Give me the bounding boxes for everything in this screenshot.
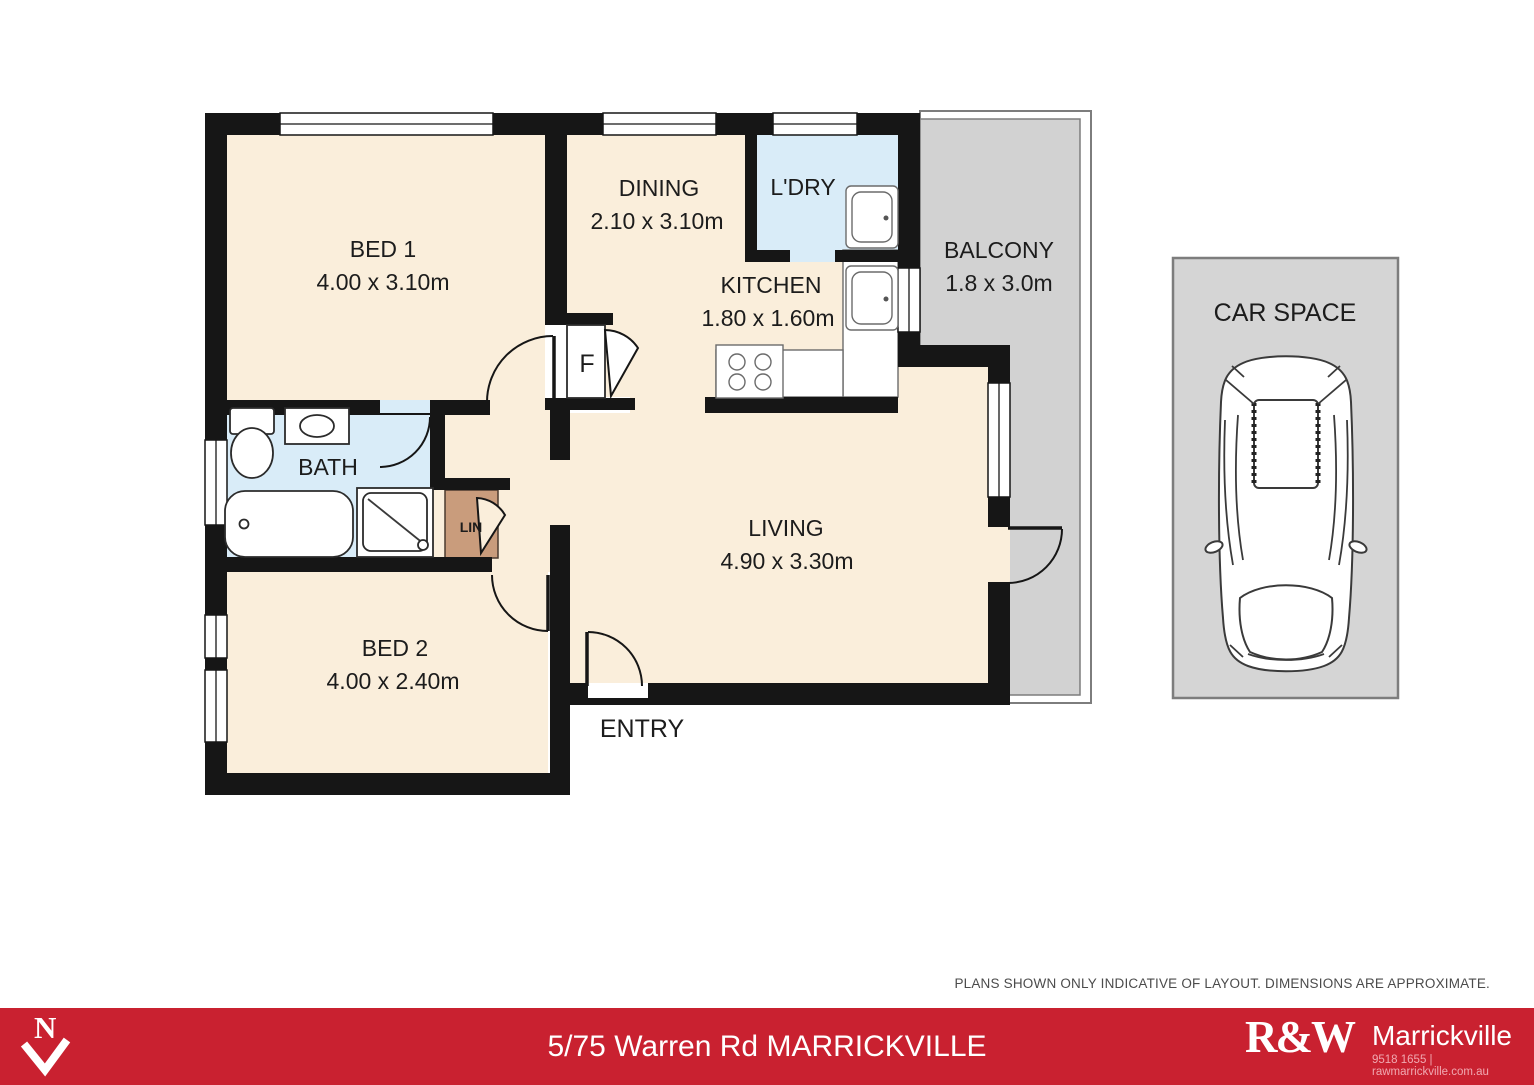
kitchen-dims: 1.80 x 1.60m	[702, 305, 835, 331]
kitchen-sink-icon	[846, 266, 898, 330]
shower-icon	[357, 488, 433, 557]
stove-icon	[716, 345, 783, 398]
floorplan-page: { "plan": { "bed1": {"name": "BED 1", "d…	[0, 0, 1534, 1085]
agency-office-name: Marrickville	[1372, 1022, 1534, 1050]
disclaimer-text: PLANS SHOWN ONLY INDICATIVE OF LAYOUT. D…	[954, 976, 1490, 991]
agency-contact: 9518 1655 | rawmarrickville.com.au	[1372, 1054, 1534, 1078]
bathtub-icon	[225, 491, 353, 557]
dining-dims: 2.10 x 3.10m	[591, 208, 724, 234]
bed2-dims: 4.00 x 2.40m	[327, 668, 460, 694]
dining-label: DINING	[619, 175, 700, 201]
agency-logo-mark: R&W	[1245, 1016, 1354, 1058]
bed2-label: BED 2	[362, 635, 428, 661]
washing-machine-icon	[846, 186, 898, 248]
car-icon	[1204, 356, 1368, 671]
living-label: LIVING	[748, 515, 823, 541]
agency-logo: R&W Marrickville 9518 1655 | rawmarrickv…	[1245, 1016, 1534, 1078]
car-space-label: CAR SPACE	[1214, 299, 1357, 327]
bed1-dims: 4.00 x 3.10m	[317, 269, 450, 295]
bed1-label: BED 1	[350, 236, 416, 262]
vanity-sink-icon	[285, 408, 349, 444]
floorplan-drawing: BED 1 4.00 x 3.10m DINING 2.10 x 3.10m L…	[0, 0, 1534, 1085]
bed1-floor	[227, 135, 545, 400]
balcony-label: BALCONY	[944, 237, 1054, 263]
entry-label: ENTRY	[600, 715, 685, 743]
living-dims: 4.90 x 3.30m	[721, 548, 854, 574]
bath-label: BATH	[298, 454, 358, 480]
linen-label: LIN	[460, 519, 483, 535]
fridge-label: F	[579, 350, 594, 378]
laundry-label: L'DRY	[770, 174, 835, 200]
toilet-icon	[230, 408, 274, 478]
kitchen-label: KITCHEN	[721, 272, 822, 298]
balcony-dims: 1.8 x 3.0m	[945, 270, 1052, 296]
